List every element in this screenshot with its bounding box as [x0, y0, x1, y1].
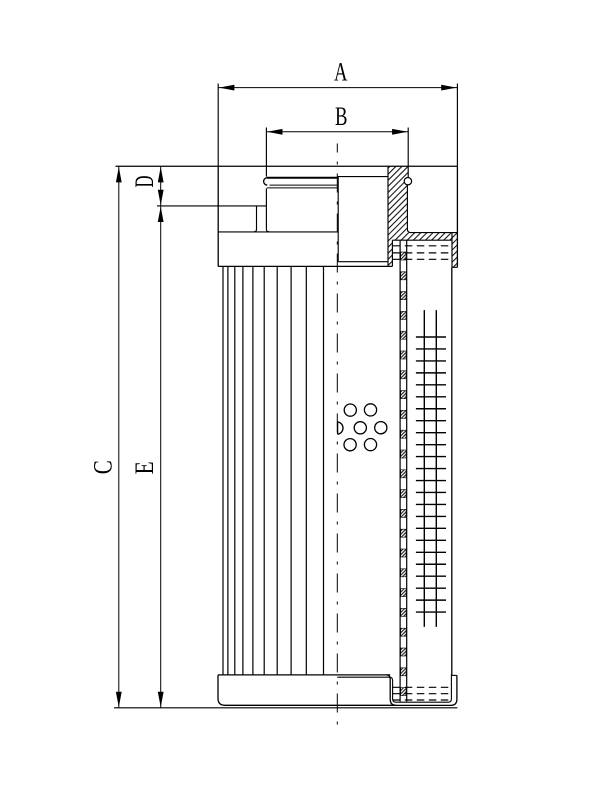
- svg-text:B: B: [335, 101, 348, 131]
- svg-text:C: C: [88, 460, 118, 474]
- svg-text:A: A: [334, 56, 348, 86]
- svg-text:E: E: [129, 461, 159, 474]
- svg-text:D: D: [129, 176, 159, 188]
